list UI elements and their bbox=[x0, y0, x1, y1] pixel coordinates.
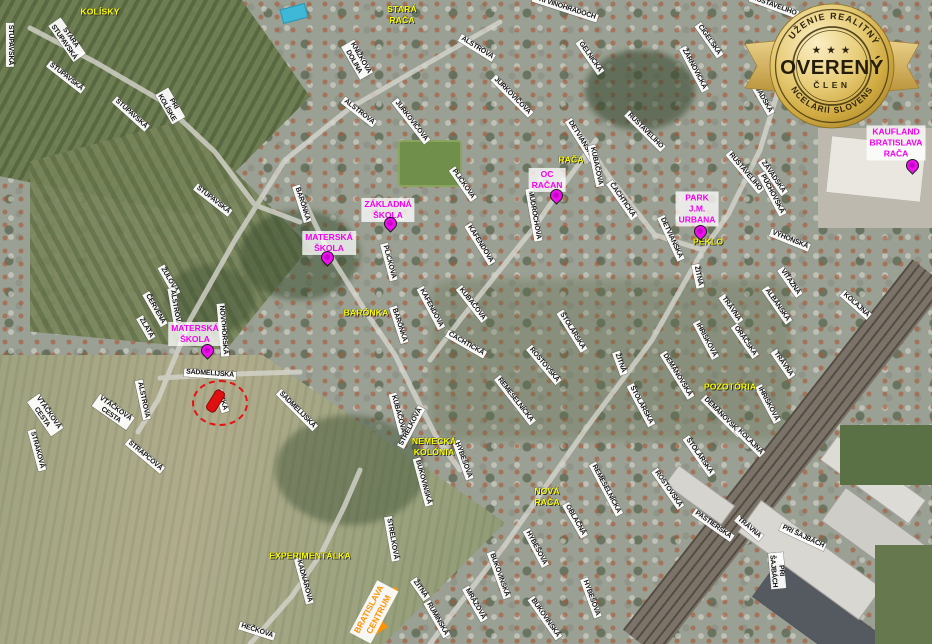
locality-label: NEMECKÁ KOLÓNIA bbox=[412, 436, 456, 458]
badge-subtitle: ČLEN bbox=[813, 79, 850, 90]
locality-label: NOVÁ RAČA bbox=[534, 486, 559, 508]
street-label: PRI ŠAJBÁCH bbox=[768, 552, 786, 590]
locality-label: KOLÍSKY bbox=[80, 6, 119, 17]
poi-label: PARK J.M. URBANA bbox=[676, 191, 719, 226]
verified-badge: ZDRUŽENIE REALITNÝCH KANCELÁRIÍ SLOVENSK… bbox=[737, 0, 927, 132]
poi-label: MATERSKÁ ŠKOLA bbox=[168, 322, 222, 346]
badge-title: OVERENÝ bbox=[780, 55, 884, 79]
locality-label: POZOTÓRIA bbox=[704, 381, 756, 392]
road-detvianska bbox=[572, 122, 703, 250]
locality-label: STARÁ RAČA bbox=[387, 4, 417, 26]
locality-label: RAČA bbox=[558, 154, 583, 165]
locality-label: BARÓNKA bbox=[344, 307, 389, 318]
field-patch bbox=[875, 545, 932, 644]
map-canvas: STARÁ STUPAVSKÁSTUPAVSKÁSTUPAVSKÁPRI KOL… bbox=[0, 0, 932, 644]
badge-stars: ★ ★ ★ bbox=[812, 45, 851, 55]
field-patch bbox=[840, 425, 932, 485]
street-label: STUPAVSKÁ bbox=[6, 23, 14, 67]
poi-label: OC RAČAN bbox=[529, 168, 566, 192]
locality-label: EXPERIMENTÁLKA bbox=[269, 550, 351, 561]
